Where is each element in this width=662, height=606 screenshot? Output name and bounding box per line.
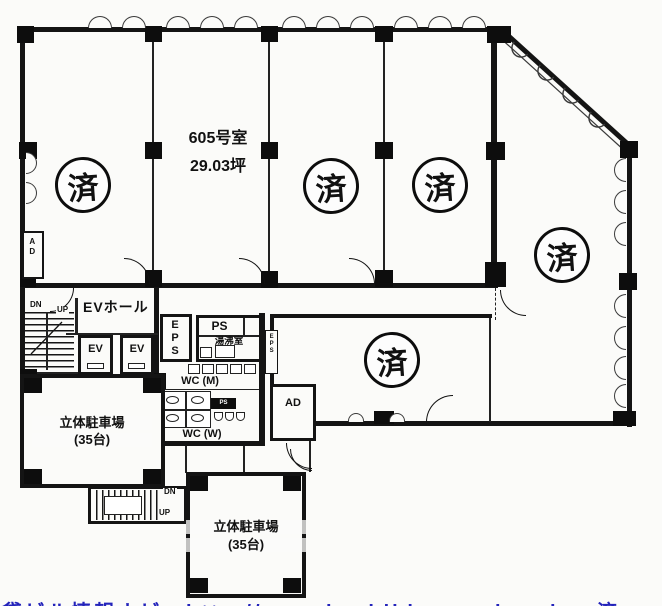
ps-label: PS: [198, 320, 241, 333]
washbasin: [188, 364, 200, 374]
stamp-glyph: 済: [423, 161, 457, 208]
ps-small-label: PS: [219, 400, 227, 407]
elevator-1-door: [87, 363, 104, 369]
column: [375, 26, 393, 42]
parking-corner: [283, 578, 301, 593]
wall-stair1-right: [75, 298, 78, 335]
column: [375, 142, 393, 159]
partition-dashed: [495, 288, 496, 320]
up-label: UP: [56, 306, 69, 315]
washbasin: [244, 364, 256, 374]
kitchenette-sink: [200, 347, 212, 358]
column: [17, 26, 34, 43]
parking-name-label: 立体駐車場: [32, 416, 152, 430]
stamp-glyph: 済: [375, 336, 409, 383]
parking-corner: [283, 476, 301, 491]
parking-capacity-label: (35台): [32, 433, 152, 447]
washbasin: [216, 364, 228, 374]
kitchenette-counter: [215, 345, 235, 358]
parking-name-label: 立体駐車場: [186, 520, 306, 534]
stairs-upper-stringer: [46, 312, 48, 370]
column: [375, 270, 393, 287]
room-number-label: 605号室: [166, 130, 270, 148]
eps-side-label: EPS: [268, 334, 275, 372]
caption-text: 貸ビル情報ナビ http://www.kashibiru-navi.co.jp …: [2, 596, 662, 606]
ps-divider: [243, 318, 245, 336]
window-arc: [389, 413, 405, 422]
window-arc: [348, 413, 364, 422]
wc-men-label: WC (M): [168, 375, 232, 387]
toilet: [191, 414, 204, 422]
ad-room: [270, 384, 316, 441]
floor-plan: 済 済 済 済 済 605号室 29.03坪 DN UP EVホール EV EV…: [0, 0, 662, 606]
washbasin: [230, 364, 242, 374]
wall-corridor-1: [243, 446, 245, 473]
urinal: [214, 412, 223, 421]
urinal: [236, 412, 245, 421]
column: [619, 273, 637, 290]
wall-wc-south: [154, 441, 265, 446]
parking-capacity-label: (35台): [186, 538, 306, 552]
stamp-glyph: 済: [314, 162, 348, 209]
dn-label: DN: [163, 488, 177, 497]
column: [613, 411, 636, 426]
ps-small-shaft: PS: [211, 398, 236, 409]
toilet: [166, 396, 179, 404]
parking-corner: [143, 378, 161, 393]
ev-hall-label: EVホール: [83, 300, 149, 315]
column: [487, 26, 511, 43]
wall-midroom-top: [270, 314, 492, 318]
elevator-2-label: EV: [122, 343, 152, 355]
parking-corner: [24, 378, 42, 393]
column: [486, 142, 505, 160]
parking-corner: [143, 469, 161, 484]
wc-women-label: WC (W): [170, 428, 234, 440]
wall-corridor-3: [185, 446, 187, 473]
ad-room-label: AD: [276, 397, 310, 409]
up-label: UP: [158, 509, 171, 518]
column: [145, 142, 162, 159]
parking-corner: [24, 469, 42, 484]
toilet: [166, 414, 179, 422]
washbasin: [202, 364, 214, 374]
column: [261, 26, 278, 42]
stairs-upper: [24, 312, 74, 370]
elevator-1-label: EV: [80, 343, 111, 355]
column: [145, 26, 162, 42]
caption-clipped: 貸ビル情報ナビ http://www.kashibiru-navi.co.jp …: [2, 596, 662, 606]
elevator-2-door: [128, 363, 145, 369]
eps-label: EPS: [169, 319, 181, 359]
stamp-glyph: 済: [545, 231, 579, 278]
toilet: [191, 396, 204, 404]
partition-southeast-room: [489, 318, 491, 422]
stairs-lower-landing: [104, 496, 142, 515]
column: [485, 262, 506, 287]
urinal: [225, 412, 234, 421]
room-area-label: 29.03坪: [166, 158, 270, 176]
ad-shaft-left-label: AD: [27, 237, 36, 275]
parking-corner: [190, 476, 208, 491]
column: [620, 141, 638, 158]
stamp-glyph: 済: [66, 161, 100, 208]
parking-corner: [190, 578, 208, 593]
dn-label: DN: [29, 301, 43, 310]
